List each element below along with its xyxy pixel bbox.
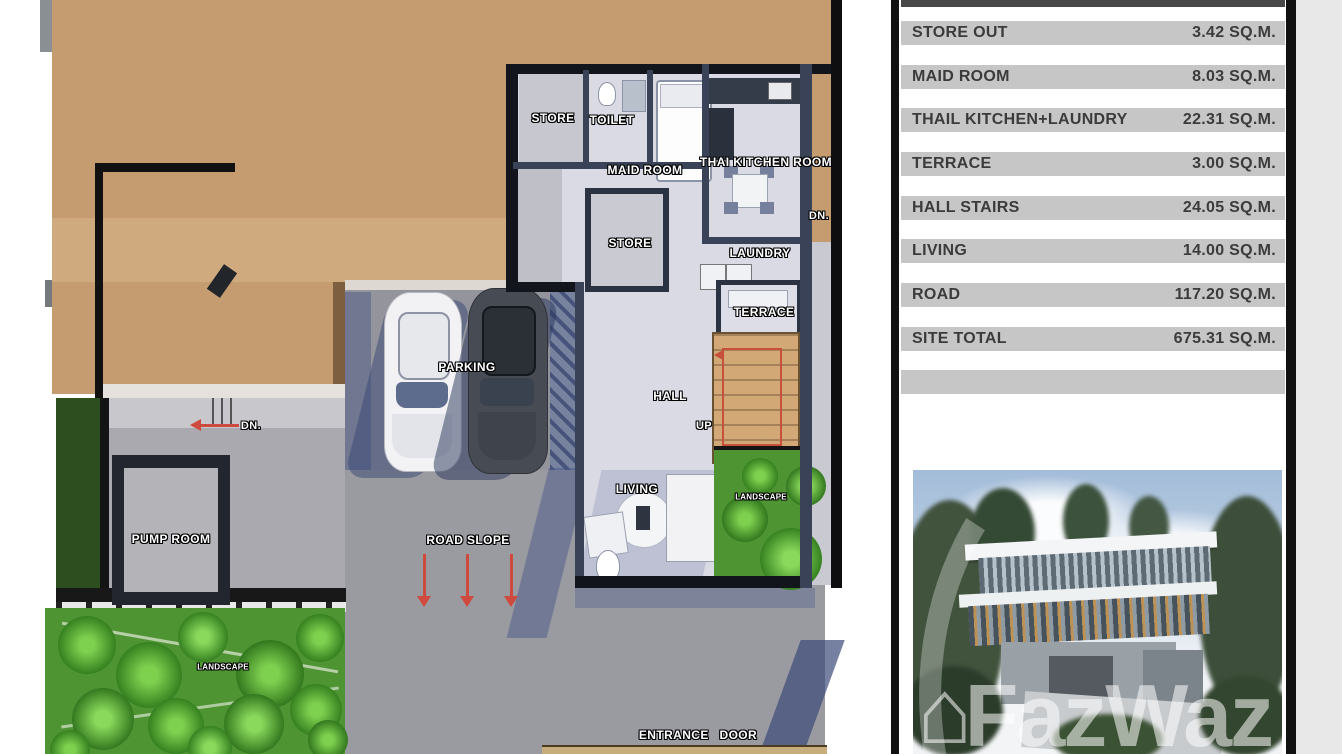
plant xyxy=(178,612,228,662)
table-row: THAIL KITCHEN+LAUNDRY 22.31 SQ.M. xyxy=(901,108,1285,132)
room-label-laundry: LAUNDRY xyxy=(729,246,790,260)
table-row: SITE TOTAL 675.31 SQ.M. xyxy=(901,327,1285,351)
road-slope-arrow-head xyxy=(504,596,518,607)
row-value: 675.31 SQ.M. xyxy=(1174,327,1276,351)
toilet-fixture xyxy=(598,82,616,106)
boundary-line xyxy=(95,163,235,172)
label-landscape-bottom: LANDSCAPE xyxy=(197,663,249,672)
building-shadow xyxy=(575,588,815,608)
site-plan-sheet: STORE TOILET MAID ROOM THAI KITCHEN ROOM… xyxy=(0,0,1342,754)
row-label: HALL STAIRS xyxy=(912,196,1020,220)
room-label-store: STORE xyxy=(531,111,574,125)
room-label-pump-room: PUMP ROOM xyxy=(132,532,211,546)
row-label: ROAD xyxy=(912,283,960,307)
room-label-toilet: TOILET xyxy=(590,113,635,127)
dn-arrow-head xyxy=(190,419,201,431)
label-up: UP xyxy=(696,420,712,432)
room-label-store-inner: STORE xyxy=(608,236,651,250)
kitchen-sink xyxy=(768,82,792,100)
living-table-item xyxy=(636,506,650,530)
plant xyxy=(308,720,348,754)
panel-border-right xyxy=(1286,0,1296,754)
road-slope-arrow xyxy=(466,554,469,596)
roof-right-strip xyxy=(812,0,831,242)
side-walkway xyxy=(812,242,831,585)
roof-eave-band xyxy=(100,384,347,398)
room-label-maid-room: MAID ROOM xyxy=(608,163,683,177)
table-row-partial-top xyxy=(901,0,1285,7)
row-label: TERRACE xyxy=(912,152,991,176)
white-car-windshield xyxy=(396,382,448,408)
pump-room-floor xyxy=(124,468,218,592)
row-value: 3.42 SQ.M. xyxy=(1192,21,1276,45)
row-label: SITE TOTAL xyxy=(912,327,1007,351)
label-dn-left: DN. xyxy=(241,420,261,432)
table-row: LIVING 14.00 SQ.M. xyxy=(901,239,1285,263)
dining-chair xyxy=(760,202,774,214)
dn-steps xyxy=(212,398,238,425)
wall xyxy=(506,64,831,74)
wall xyxy=(800,64,812,588)
row-value: 22.31 SQ.M. xyxy=(1183,108,1276,132)
row-label: STORE OUT xyxy=(912,21,1008,45)
sofa xyxy=(666,474,718,562)
watermark-text: FazWaz xyxy=(965,674,1272,754)
row-value: 117.20 SQ.M. xyxy=(1175,283,1276,307)
room-label-living: LIVING xyxy=(616,482,658,496)
room-label-hall: HALL xyxy=(653,389,687,403)
row-value: 24.05 SQ.M. xyxy=(1183,196,1276,220)
wall xyxy=(702,64,709,244)
table-row: MAID ROOM 8.03 SQ.M. xyxy=(901,65,1285,89)
table-row: HALL STAIRS 24.05 SQ.M. xyxy=(901,196,1285,220)
entrance-gate xyxy=(542,745,827,754)
row-label: MAID ROOM xyxy=(912,65,1010,89)
road-slope-arrow-head xyxy=(460,596,474,607)
site-wall xyxy=(100,398,109,610)
label-parking: PARKING xyxy=(438,360,495,374)
dining-chair xyxy=(724,202,738,214)
boundary-wall-mark xyxy=(40,0,52,52)
row-value: 14.00 SQ.M. xyxy=(1183,239,1276,263)
table-row-empty xyxy=(901,370,1285,394)
ramp-hatch xyxy=(516,162,562,292)
site-wall xyxy=(831,0,842,588)
area-table-panel: STORE OUT 3.42 SQ.M. MAID ROOM 8.03 SQ.M… xyxy=(899,0,1286,754)
wall xyxy=(583,70,589,168)
fazwaz-watermark: ⌂ FazWaz xyxy=(917,646,1272,754)
road-slope-arrow-head xyxy=(417,596,431,607)
stairs-path xyxy=(722,348,782,446)
wall xyxy=(647,70,653,168)
row-value: 3.00 SQ.M. xyxy=(1192,152,1276,176)
roof-top-right xyxy=(513,0,831,66)
row-label: LIVING xyxy=(912,239,967,263)
plant xyxy=(296,614,344,662)
dark-car-hood xyxy=(478,412,536,460)
dn-arrow-stem xyxy=(201,424,239,427)
room-label-thai-kitchen: THAI KITCHEN ROOM xyxy=(700,155,832,169)
plant xyxy=(742,458,778,494)
road-slope-arrow xyxy=(423,554,426,596)
label-entrance-door: ENTRANCE DOOR xyxy=(639,728,757,742)
road-slope-arrow xyxy=(510,554,513,596)
right-margin xyxy=(1296,0,1342,754)
room-label-terrace: TERRACE xyxy=(734,305,795,319)
wall xyxy=(506,282,583,292)
wall xyxy=(575,576,812,588)
dark-car-windshield xyxy=(480,378,534,406)
wall xyxy=(506,64,518,292)
house-photo: ⌂ FazWaz xyxy=(913,470,1282,754)
plant xyxy=(224,694,284,754)
bed-pillow xyxy=(660,84,706,108)
stairs-arrow-head xyxy=(714,350,723,360)
wall xyxy=(702,237,812,244)
table-row: TERRACE 3.00 SQ.M. xyxy=(901,152,1285,176)
label-road-slope: ROAD SLOPE xyxy=(426,533,509,547)
label-landscape-right: LANDSCAPE xyxy=(735,493,787,502)
panel-border-left xyxy=(891,0,899,754)
plant xyxy=(58,616,116,674)
kitchen-cabinet xyxy=(708,108,734,160)
row-label: THAIL KITCHEN+LAUNDRY xyxy=(912,108,1128,132)
row-value: 8.03 SQ.M. xyxy=(1192,65,1276,89)
label-dn-right: DN. xyxy=(809,210,829,222)
table-row: ROAD 117.20 SQ.M. xyxy=(901,283,1285,307)
roof-ridge-highlight xyxy=(52,218,513,282)
table-row: STORE OUT 3.42 SQ.M. xyxy=(901,21,1285,45)
plant xyxy=(722,496,768,542)
wall xyxy=(575,282,584,588)
shower-pad xyxy=(622,80,646,112)
